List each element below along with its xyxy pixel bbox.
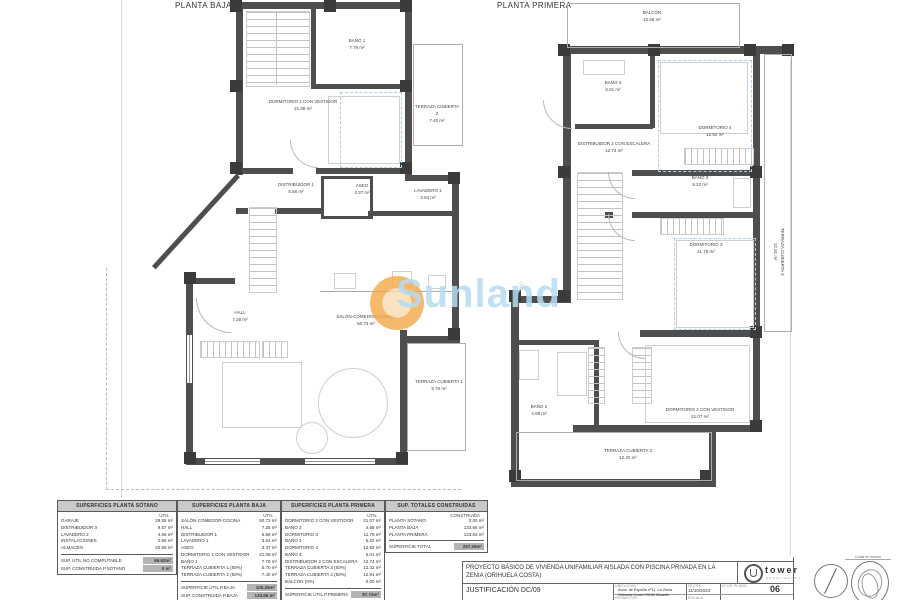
- table-row: DORMITORIO 1 CON VESTIDOR21.08 m²: [181, 552, 277, 559]
- window-opening: [205, 459, 260, 464]
- wall-segment: [640, 330, 758, 337]
- table-row: INSTALACIONES2.65 m²: [61, 538, 173, 545]
- column-pier: [230, 0, 242, 12]
- window-opening: [305, 459, 375, 464]
- column-pier: [744, 44, 756, 56]
- table-header: SUPERFICIES PLANTA BAJA: [178, 501, 280, 512]
- terrace-outline: [413, 44, 463, 146]
- room-label-dormitorio-4: DORMITORIO 412.82 m²: [665, 125, 765, 139]
- logo-subtitle: ARQUITECTOS: [766, 576, 801, 580]
- ubicacion-value-line1: Avda. de España nº11, La Zenia: [618, 588, 672, 592]
- table-row: PLANTA PRIMERA123.63 m²: [389, 532, 484, 539]
- tower-logo-glyph: [750, 569, 757, 577]
- plano-number: 06: [770, 584, 780, 594]
- wall-segment: [575, 124, 653, 129]
- plano-label: Nº DE PLANO: [722, 584, 747, 588]
- room-label-distribuidor-1: DISTRIBUIDOR 15.58 m²: [256, 182, 336, 196]
- stamp-icon: [851, 561, 889, 600]
- table-row: BAÑO 46.01 m²: [285, 552, 381, 559]
- table-totales-construidas: SUP. TOTALES CONSTRUIDAS CONSTRUIDA PLAN…: [385, 500, 488, 553]
- registered-mark-icon: ®: [518, 280, 524, 289]
- table-total-row: SUP. CONSTRUIDA P.BAJA133.66 m²: [181, 592, 277, 599]
- table-row: ASEO3.37 m²: [181, 545, 277, 552]
- wall-segment: [243, 168, 293, 174]
- table-row: ALMACÉN20.59 m²: [61, 545, 173, 552]
- titleblock-line: [737, 561, 738, 583]
- column-pier: [230, 162, 242, 174]
- table-row: DORMITORIO 2 CON VESTIDOR21.07 m²: [285, 518, 381, 525]
- door-arc: [618, 332, 645, 359]
- escala-label: ESCALA: [688, 596, 703, 600]
- column-pier: [750, 420, 762, 432]
- project-title: PROYECTO BÁSICO DE VIVIENDA UNIFAMILIAR …: [466, 564, 734, 581]
- column-pier: [400, 80, 412, 92]
- logo-name: tower: [765, 565, 799, 575]
- table-row: TERRAZA CUBIERTA 2 (50%)7.40 m²: [181, 572, 277, 579]
- wall-segment: [311, 9, 316, 86]
- wall-segment: [650, 54, 655, 128]
- table-total-row: SUP. CONSTRUIDA P.SÓTANO0 m²: [61, 565, 173, 572]
- bath-fixture-outline: [557, 352, 587, 396]
- bath-fixture-outline: [519, 350, 539, 380]
- column-pier: [558, 166, 570, 178]
- floor-plan-sheet: PLANTA BAJA: [0, 0, 900, 600]
- table-totals: SUP. ÚTIL NO COMPUTABLE66.92m² SUP. CONS…: [61, 554, 173, 572]
- column-pier: [324, 0, 336, 12]
- bath-fixture-outline: [733, 178, 751, 208]
- compass-needle: [824, 568, 837, 594]
- room-label-hall: HALL7.26 m²: [215, 310, 265, 324]
- door-arc: [543, 100, 572, 129]
- table-row: DISTRIBUIDOR 2 CON ESCALERA12.74 m²: [285, 559, 381, 566]
- room-label-terraza-4: TERRAZA CUBIERTA 412.91 m²: [771, 207, 785, 297]
- table-total-row: SUPERFICIE ÚTIL P.PRIMERA87.74m²: [285, 591, 381, 598]
- table-planta-sotano: SUPERFICIES PLANTA SÓTANO ÚTIL GARAJE29.…: [57, 500, 177, 575]
- drawing-title: JUSTIFICACIÓN DC/09: [466, 587, 541, 594]
- table-row: BAÑO 35.22 m²: [285, 538, 381, 545]
- wardrobe-hatch: [588, 347, 605, 404]
- table-row: HALL7.26 m²: [181, 525, 277, 532]
- compass-icon: [814, 564, 848, 598]
- table-header: SUPERFICIES PLANTA PRIMERA: [282, 501, 384, 512]
- table-row: SALÓN-COMEDOR-COCINA50.73 m²: [181, 518, 277, 525]
- table-row: PLANTA SÓTANO0.00 m²: [389, 518, 484, 525]
- closet-hatch: [660, 218, 724, 235]
- room-label-dormitorio-2: DORMITORIO 2 CON VESTIDOR21.07 m²: [640, 407, 760, 421]
- titleblock-line: [613, 583, 614, 600]
- table-row: DISTRIBUIDOR 15.58 m²: [181, 532, 277, 539]
- staircase-divider: [276, 11, 277, 85]
- table-row: TERRAZA CUBIERTA 1 (50%)5.70 m²: [181, 565, 277, 572]
- tower-logo-icon: [744, 564, 763, 583]
- table-row: PLANTA BAJA133.66 m²: [389, 525, 484, 532]
- table-row: TERRAZA CUBIERTA 3 (50%)12.32 m²: [285, 565, 381, 572]
- promotor-label: PROMOTOR: [615, 596, 637, 600]
- bed-dashed-outline: [658, 60, 752, 172]
- door-arc: [290, 140, 318, 168]
- cotas-note: Cotas en metros: [845, 555, 891, 560]
- room-label-terraza-3: TERRAZA CUBIERTA 312.32 m²: [578, 448, 678, 462]
- room-label-banio-4: BAÑO 46.01 m²: [592, 80, 634, 94]
- wall-segment: [573, 425, 758, 432]
- table-total-row: SUPERFICIE TOTAL257.29m²: [389, 543, 484, 550]
- wall-segment: [368, 211, 454, 216]
- table-row: DISTRIBUIDOR 39.57 m²: [61, 525, 173, 532]
- ramp-diagonal-wall: [152, 174, 240, 270]
- planta-baja-title: PLANTA BAJA: [175, 1, 232, 10]
- titleblock-line: [720, 583, 721, 600]
- table-row: DORMITORIO 412.82 m²: [285, 545, 381, 552]
- titleblock-line: [686, 583, 687, 600]
- room-label-terraza-2: TERRAZA CUBIERTA 27.40 m²: [414, 104, 460, 124]
- room-label-banio-3: BAÑO 35.22 m²: [670, 175, 730, 189]
- table-total-row: SUPERFICIE ÚTIL P.BAJA105.29m²: [181, 584, 277, 591]
- room-label-dormitorio-3: DORMITORIO 311.78 m²: [656, 242, 756, 256]
- table-row: LAVADERO 24.66 m²: [61, 532, 173, 539]
- wall-segment: [236, 208, 248, 214]
- table-totals: SUPERFICIE ÚTIL P.PRIMERA87.74m² SUP. CO…: [285, 588, 381, 600]
- wall-segment: [316, 168, 412, 174]
- wall-segment: [311, 84, 411, 89]
- table-planta-baja: SUPERFICIES PLANTA BAJA ÚTIL SALÓN-COMED…: [177, 500, 281, 600]
- table-totals: SUPERFICIE ÚTIL P.BAJA105.29m² SUP. CONS…: [181, 581, 277, 599]
- table-header: SUPERFICIES PLANTA SÓTANO: [58, 501, 176, 512]
- table-row: BAÑO 17.79 m²: [181, 559, 277, 566]
- room-label-distribuidor-2: DISTRIBUIDOR 2 CON ESCALERA12.74 m²: [564, 141, 664, 155]
- table-row: BAÑO 24.68 m²: [285, 525, 381, 532]
- table-row: TERRAZA CUBIERTA 4 (50%)12.91 m²: [285, 572, 381, 579]
- bath-fixture-outline: [583, 60, 625, 75]
- table-header: SUP. TOTALES CONSTRUIDAS: [386, 501, 487, 512]
- window-opening: [187, 335, 192, 383]
- room-label-banio-2: BAÑO 24.68 m²: [512, 404, 566, 418]
- room-label-balcon: BALCÓN10.66 m²: [612, 10, 692, 24]
- room-label-banio-1: BAÑO 17.79 m²: [327, 38, 387, 52]
- staircase-hatch: [246, 11, 310, 87]
- column-pier: [448, 172, 460, 184]
- room-label-dormitorio-1: DORMITORIO 1 CON VESTIDOR21.08 m²: [253, 99, 353, 113]
- room-label-aseo: ASEO3.37 m²: [342, 183, 382, 197]
- planta-primera-title: PLANTA PRIMERA: [497, 1, 571, 10]
- fecha-value: 11/10/2023: [688, 588, 710, 593]
- sunland-watermark-text: Sunland: [396, 272, 561, 317]
- table-totals: SUPERFICIE TOTAL257.29m²: [389, 540, 484, 550]
- table-row: GARAJE29.55 m²: [61, 518, 173, 525]
- table-row: LAVADERO 13.54 m²: [181, 538, 277, 545]
- room-label-lavadero-1: LAVADERO 13.54 m²: [398, 188, 458, 202]
- table-total-row: SUP. ÚTIL NO COMPUTABLE66.92m²: [61, 557, 173, 564]
- column-pier: [230, 80, 242, 92]
- table-row: BALCÓN (0%)0.00 m²: [285, 579, 381, 586]
- wall-segment: [275, 208, 323, 214]
- titleblock-line: [462, 561, 793, 562]
- titleblock-line: [462, 561, 463, 600]
- column-pier: [400, 0, 412, 12]
- wall-segment: [516, 340, 598, 345]
- table-planta-primera: SUPERFICIES PLANTA PRIMERA ÚTIL DORMITOR…: [281, 500, 385, 600]
- room-label-terraza-1: TERRAZA CUBIERTA 15.70 m²: [410, 379, 468, 393]
